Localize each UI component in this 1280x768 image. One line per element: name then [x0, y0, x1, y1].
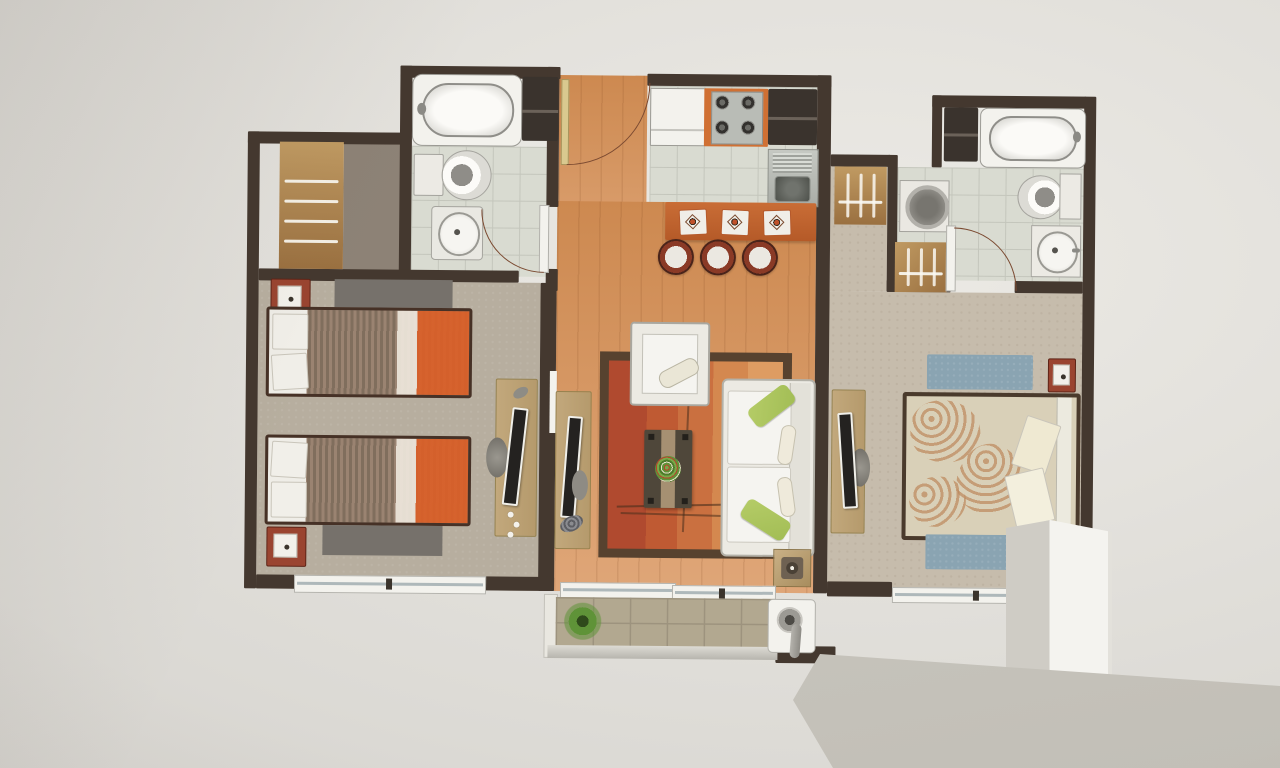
fridge-counter — [650, 88, 707, 146]
bathroom1-cabinet — [522, 77, 559, 141]
placemat — [763, 210, 792, 237]
lamp-dot-icon — [1061, 374, 1066, 379]
closet-shelf — [284, 240, 338, 243]
centerpiece-plant — [655, 456, 681, 482]
pedestal-sink-1 — [431, 206, 483, 260]
pillow — [270, 441, 308, 479]
closet-shelf — [839, 200, 883, 203]
closet-rail — [907, 248, 910, 286]
kitchen-sink — [767, 149, 819, 207]
drainboard-lines — [773, 153, 812, 173]
cooktop — [704, 88, 769, 147]
floor-plan — [243, 56, 1096, 665]
headboard — [1056, 397, 1072, 529]
wall-bedroom2-bottom-left — [827, 581, 892, 597]
toilet-1-tank — [413, 154, 443, 196]
burner-icon — [715, 95, 729, 109]
cabinet-divider — [944, 133, 978, 136]
table-dot — [682, 434, 688, 440]
pillow — [271, 482, 307, 518]
side-table-glyph-icon — [786, 562, 798, 574]
bathtub-2-basin — [989, 116, 1077, 162]
washing-machine — [899, 180, 949, 232]
bbq-grill — [767, 599, 815, 653]
table-dot — [682, 498, 688, 504]
bathtub-1-basin — [422, 83, 514, 138]
sink-basin — [774, 176, 810, 202]
monitor-bedroom2 — [837, 412, 858, 509]
desk-bedroom2 — [831, 389, 866, 533]
bathtub-2 — [980, 108, 1087, 169]
washer-drum — [905, 185, 949, 229]
closet-shelf — [285, 180, 339, 183]
pillow — [271, 353, 309, 391]
wall-bathroom1-left — [399, 66, 413, 278]
desk-bedroom1 — [494, 378, 537, 536]
closet-rail — [872, 174, 875, 218]
wall-bedroom1-bottom-right — [484, 576, 554, 591]
window-bedroom1 — [294, 575, 486, 595]
tv-screen — [560, 416, 583, 519]
table-dot — [648, 434, 654, 440]
sink-1-drain-icon — [454, 229, 460, 235]
placemat — [679, 209, 708, 236]
dressing-floor — [343, 142, 406, 276]
nightstand-2 — [266, 526, 306, 566]
bar-stool — [742, 240, 778, 276]
wall-bedroom1-bottom-left — [256, 574, 296, 588]
closet-shelf — [284, 220, 338, 223]
nightstand-3 — [1048, 358, 1076, 392]
window-latch — [719, 588, 725, 598]
closet-shelf — [899, 272, 943, 275]
breakfast-bar — [665, 202, 816, 241]
toilet-2-bowl — [1017, 175, 1063, 219]
cabinet-divider — [522, 110, 558, 113]
coffee-table — [644, 430, 693, 508]
gray-rug-top — [334, 279, 452, 308]
armchair — [630, 322, 711, 407]
blue-rug-bottom — [925, 534, 1011, 570]
kitchen-cabinet-tall — [768, 89, 817, 145]
table-dot — [648, 498, 654, 504]
double-bed — [901, 392, 1080, 542]
linen-closet — [895, 242, 947, 292]
wall-corridor-top — [831, 154, 891, 167]
corridor-closet — [834, 166, 887, 224]
bathtub-1 — [412, 74, 523, 147]
sofa-backrest — [788, 383, 810, 549]
twin-bed-2 — [265, 434, 472, 526]
glass-line — [563, 588, 673, 592]
gray-rug-bottom — [322, 525, 442, 556]
bar-stool — [700, 239, 736, 275]
speaker-dots — [507, 508, 519, 542]
closet-rail — [920, 248, 923, 286]
closet-rail — [933, 248, 936, 286]
closet-shelf — [284, 200, 338, 203]
dressing-closet — [279, 142, 344, 270]
terrace-plant — [562, 599, 604, 643]
sink-2-faucet-icon — [1072, 249, 1080, 253]
pillow — [272, 314, 308, 350]
tv-console — [554, 391, 591, 549]
window-latch — [973, 591, 979, 601]
vanity-sink-2 — [1031, 225, 1081, 277]
toilet-1-bowl — [441, 150, 491, 200]
burner-icon — [741, 96, 755, 110]
burner-icon — [715, 120, 729, 134]
burner-icon — [741, 121, 755, 135]
twin-bed-1 — [266, 306, 473, 398]
side-table — [773, 549, 811, 587]
toilet-2-tank — [1059, 173, 1081, 219]
terrace-bottom-band — [547, 645, 777, 660]
bathroom2-cabinet — [944, 107, 978, 161]
cabinet-divider — [768, 117, 817, 120]
wall-kitchen-top — [647, 74, 831, 88]
placemat — [721, 209, 750, 236]
bed-pillow — [1011, 415, 1062, 476]
closet-rail — [859, 174, 862, 218]
blue-rug-top — [927, 354, 1033, 390]
closet-rail — [846, 173, 849, 217]
photo-scene — [0, 0, 1280, 768]
counter-line — [651, 129, 705, 131]
mouse-icon — [511, 384, 530, 401]
bathtub-1-faucet-icon — [417, 103, 426, 115]
sofa — [720, 378, 816, 557]
tv-mount — [572, 470, 588, 500]
window-latch — [386, 579, 392, 590]
sink-2-basin — [1037, 231, 1078, 273]
bathtub-2-faucet-icon — [1073, 132, 1081, 143]
sink-2-drain-icon — [1052, 247, 1058, 253]
bar-stool — [658, 239, 694, 275]
wall-bathroom2-bottom-right — [1015, 281, 1083, 294]
bed-pillow — [1004, 467, 1056, 529]
